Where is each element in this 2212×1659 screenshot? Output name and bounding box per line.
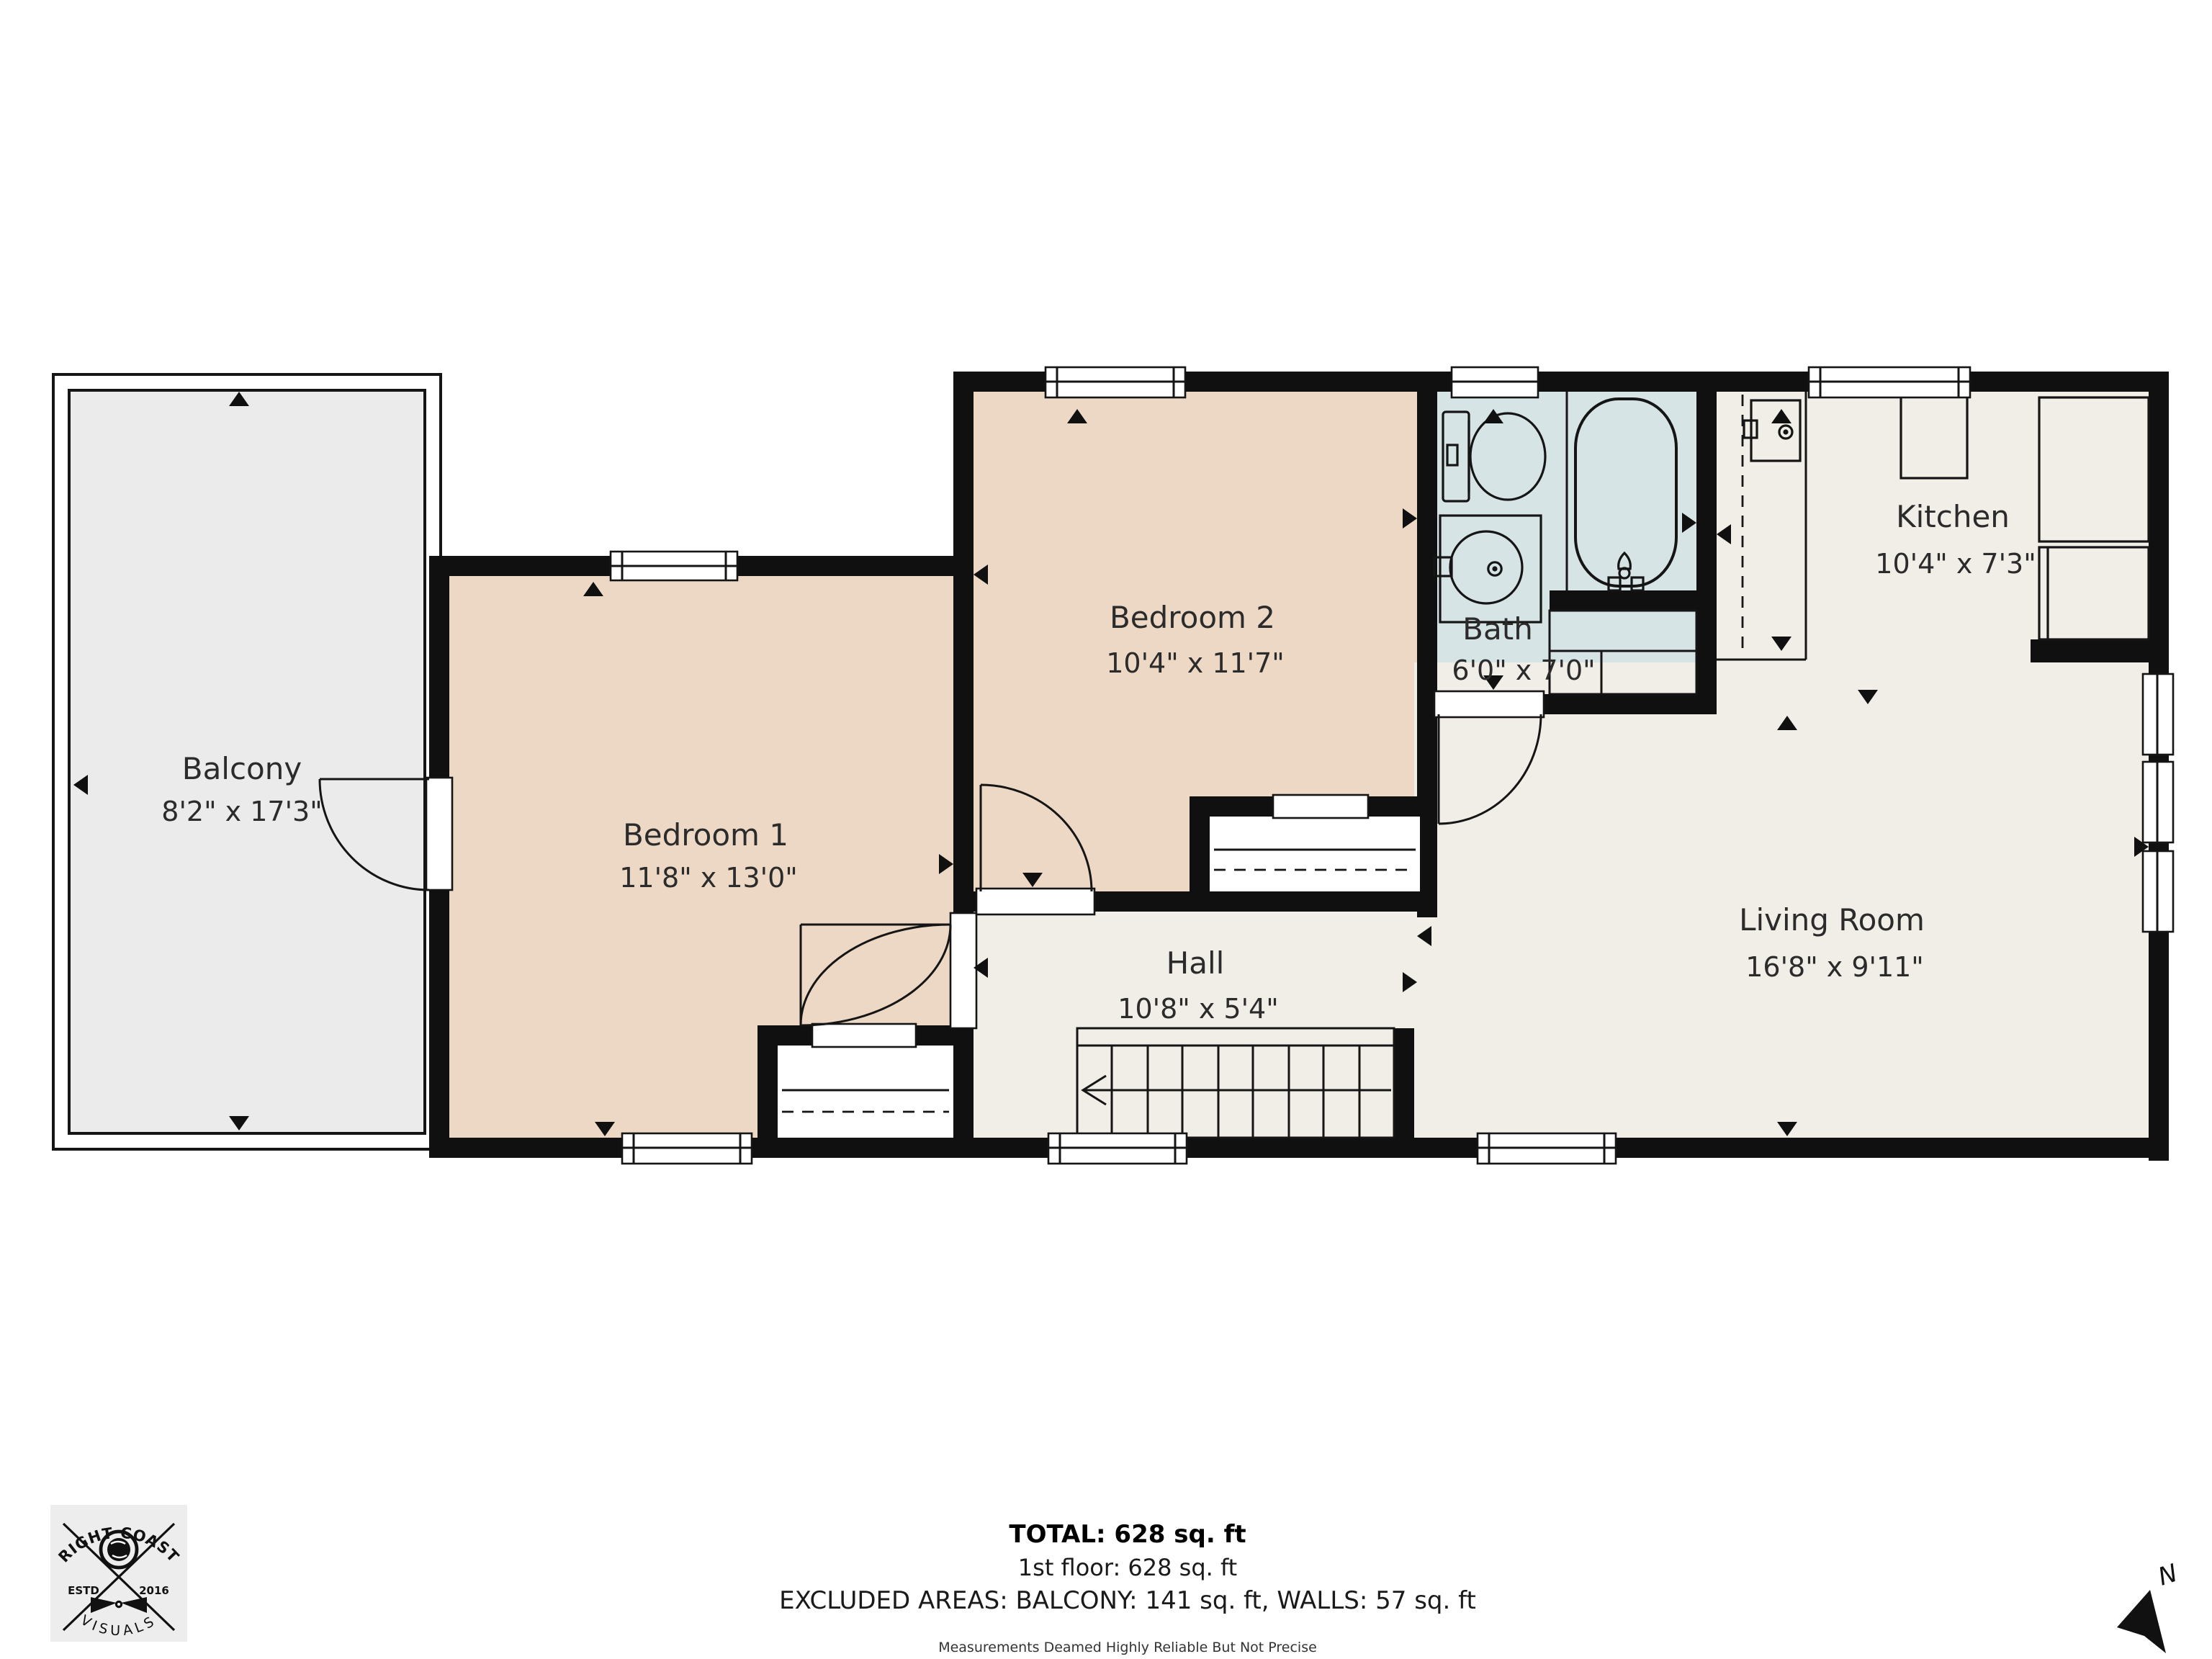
bedroom1-dims: 11'8" x 13'0" [619,862,798,894]
compass: N [2117,1559,2181,1653]
bedroom2-dims: 10'4" x 11'7" [1106,647,1285,679]
total-area-text: TOTAL: 628 sq. ft [1009,1520,1246,1549]
balcony-dims: 8'2" x 17'3" [161,796,322,827]
bedroom1-window-bottom [622,1133,752,1164]
living-room-window-bottom [1478,1133,1616,1164]
hall-dims: 10'8" x 5'4" [1118,993,1278,1025]
living-room-window-right-3 [2143,851,2173,932]
summary-block: TOTAL: 628 sq. ft 1st floor: 628 sq. ft … [779,1520,1476,1655]
bedroom2-label: Bedroom 2 [1110,600,1275,635]
bedroom1-window [611,552,737,580]
living-room-dims: 16'8" x 9'11" [1745,951,1924,983]
living-room-label: Living Room [1739,902,1925,938]
living-room-window-right-1 [2143,674,2173,755]
floor-plan: Balcony 8'2" x 17'3" Bedroom 1 11'8" x 1… [0,0,2212,1659]
hall-window-bottom [1048,1133,1187,1164]
floor-area-text: 1st floor: 628 sq. ft [1018,1554,1237,1581]
bedroom1-label: Bedroom 1 [623,817,788,853]
living-room-floor [1414,662,2149,1138]
north-label: N [2154,1559,2181,1592]
kitchen-label: Kitchen [1896,499,2010,534]
logo-estd: ESTD [68,1584,99,1597]
disclaimer-text: Measurements Deamed Highly Reliable But … [938,1640,1317,1655]
bedroom2-window [1046,367,1185,397]
bath-window [1452,367,1538,397]
living-room-window-right-2 [2143,762,2173,842]
kitchen-window [1809,367,1970,397]
balcony-label: Balcony [182,751,302,786]
bath-label: Bath [1462,611,1533,647]
logo-year: 2016 [139,1584,169,1597]
staircase [1077,1028,1394,1138]
hall-label: Hall [1166,945,1225,981]
closet-opening [812,1024,916,1047]
north-arrow-icon [2117,1590,2166,1653]
kitchen-dims: 10'4" x 7'3" [1875,548,2036,580]
bath-dims: 6'0" x 7'0" [1452,655,1595,686]
excluded-areas-text: EXCLUDED AREAS: BALCONY: 141 sq. ft, WAL… [779,1586,1476,1615]
closet-opening [1273,795,1368,818]
right-coast-visuals-logo: RIGHT COAST ESTD 2016 VISUALS [50,1505,187,1642]
